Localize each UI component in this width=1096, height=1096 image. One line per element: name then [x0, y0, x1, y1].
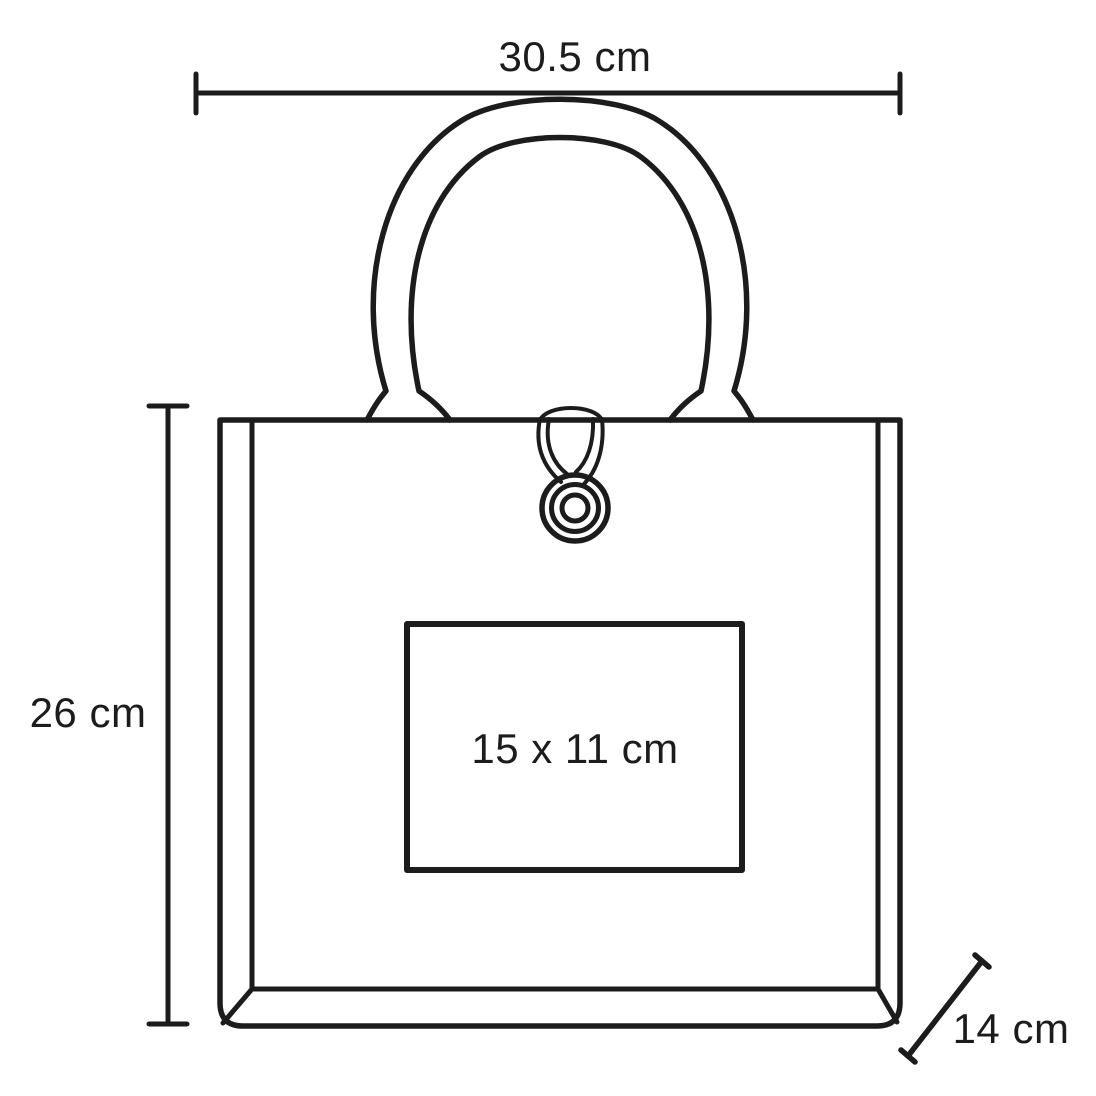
handle-inner-line [411, 138, 709, 421]
bag-handle [367, 99, 753, 420]
bag-corner-bevel-left [223, 989, 252, 1023]
closure-button-icon [542, 475, 608, 541]
button-inner-ring [562, 495, 588, 521]
button-middle-ring [552, 485, 599, 532]
bag-line-drawing [0, 0, 1096, 1096]
print-area-label: 15 x 11 cm [471, 728, 678, 770]
height-dimension-label: 26 cm [30, 692, 147, 734]
diagram-canvas: 30.5 cm 26 cm 15 x 11 cm 14 cm [0, 0, 1096, 1096]
loop-right-inner [576, 419, 593, 472]
loop-left-inner [548, 419, 567, 474]
width-dimension-label: 30.5 cm [499, 36, 652, 78]
height-dimension [149, 406, 187, 1024]
depth-dimension-label: 14 cm [953, 1008, 1070, 1050]
handle-outer-line [367, 99, 753, 420]
bag-corner-bevel-right [878, 989, 897, 1022]
